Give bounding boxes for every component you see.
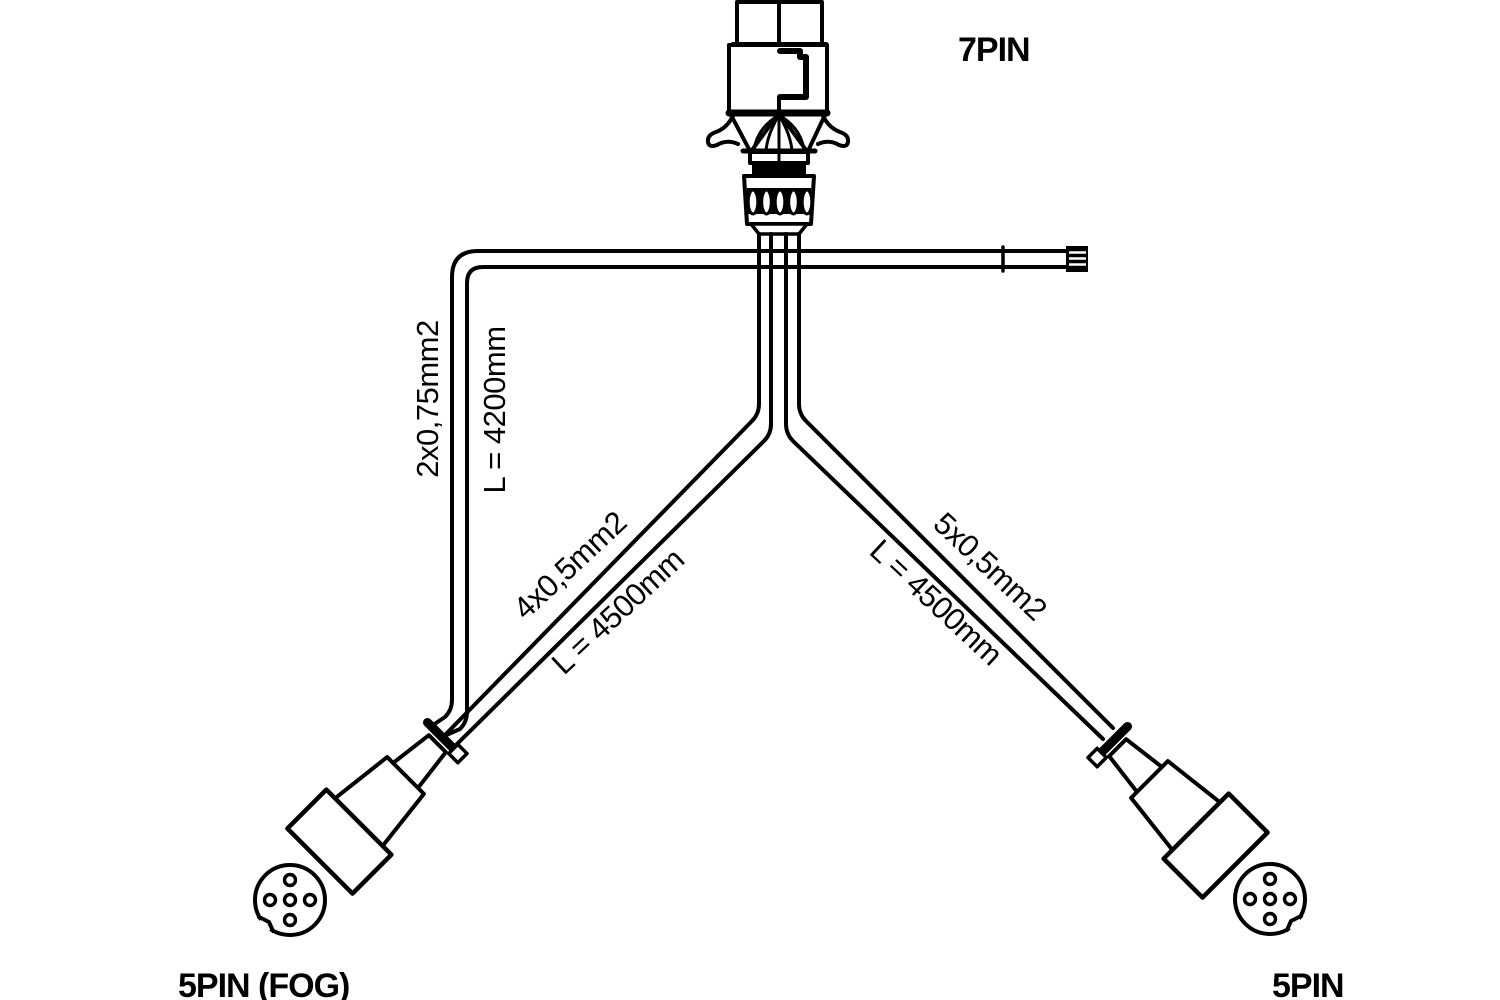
seven-pin-plug-drawing: [708, 2, 848, 234]
label-5pin-fog: 5PIN (FOG): [178, 967, 349, 1000]
label-cable-2x075-spec: 2x0,75mm2: [410, 320, 445, 477]
fog-connector-face: [255, 865, 325, 935]
harness-diagram-canvas: 7PIN 2x0,75mm2 L = 4200mm 4x0,5mm2 L = 4…: [0, 0, 1500, 1000]
wiring-harness-diagram: 7PIN 2x0,75mm2 L = 4200mm 4x0,5mm2 L = 4…: [0, 0, 1500, 1000]
cable-drawings: [433, 234, 1113, 746]
right-connector-face: [1235, 864, 1305, 934]
label-cable-2x075-length: L = 4200mm: [477, 326, 512, 493]
cable-5x05-path: [786, 234, 1113, 739]
label-7pin: 7PIN: [958, 31, 1030, 69]
label-5pin: 5PIN: [1272, 967, 1344, 1000]
right-connector-drawing: [1075, 705, 1305, 934]
fog-connector-drawing: [255, 701, 480, 935]
